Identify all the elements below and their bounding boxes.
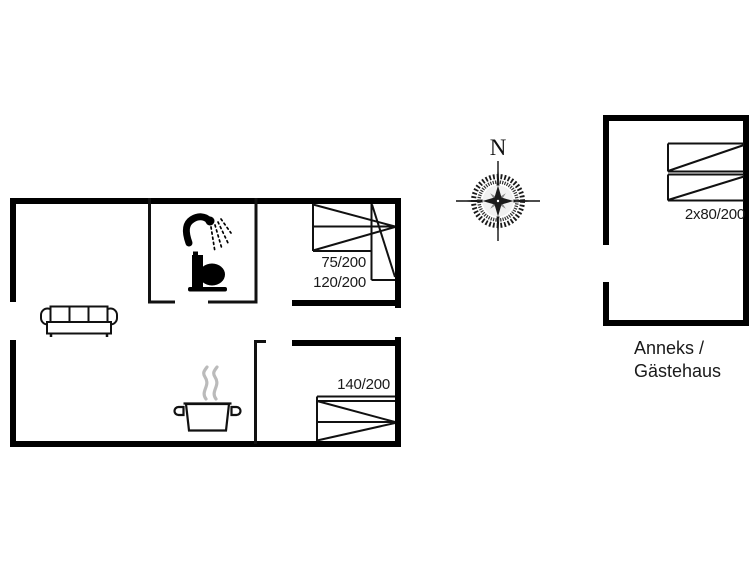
bed-size-label-75: 75/200 [300, 254, 366, 271]
bed-120-icon [313, 204, 395, 251]
sofa-icon [41, 307, 117, 338]
annex-caption-line2: Gästehaus [634, 361, 721, 382]
annex-bed-size-label: 2x80/200 [675, 206, 745, 223]
compass-north-label: N [486, 135, 510, 161]
annex-bunk-beds-icon [668, 144, 744, 201]
toilet-icon [188, 252, 227, 292]
shower-icon [186, 217, 231, 253]
bed-size-label-140: 140/200 [324, 376, 390, 393]
steam-icon [204, 367, 217, 399]
bed-75-icon [372, 204, 396, 280]
compass-rose-icon [456, 161, 540, 241]
bed-140-icon [317, 397, 395, 442]
cooking-pot-icon [175, 404, 241, 431]
floor-plan-drawing [0, 0, 755, 566]
floor-plan: N 75/200 120/200 140/200 2x80/200 Anneks… [0, 0, 755, 566]
bed-size-label-120: 120/200 [300, 274, 366, 291]
annex-caption-line1: Anneks / [634, 338, 704, 359]
